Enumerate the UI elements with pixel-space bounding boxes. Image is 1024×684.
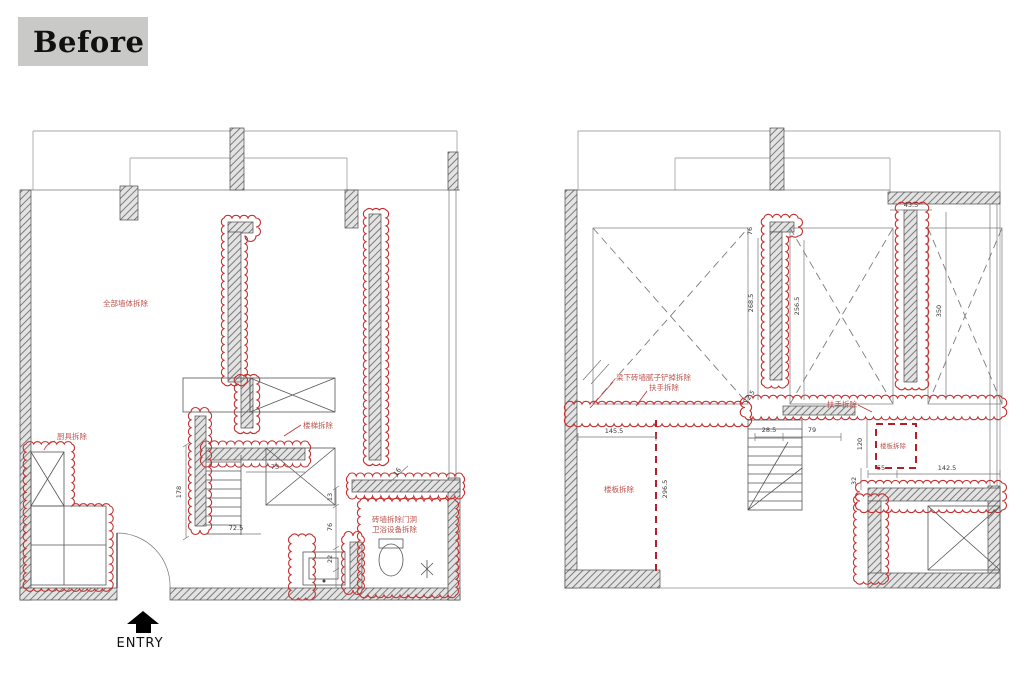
floor-plan-drawing: 178 72.5 73 13 76 22 16 全部墙体拆除 厨具拆除 楼梯拆除… xyxy=(0,0,1024,684)
dim-79: 79 xyxy=(808,426,816,434)
dim-73: 73 xyxy=(271,463,279,471)
right-plan-demolition-clouds xyxy=(564,202,1006,584)
dim-350: 350 xyxy=(935,305,943,317)
dim-256-5: 256.5 xyxy=(793,297,801,316)
dim-32: 32 xyxy=(850,477,858,485)
dim-178: 178 xyxy=(175,486,183,498)
dim-72-5: 72.5 xyxy=(742,389,757,405)
left-plan-entry-door xyxy=(117,533,170,588)
dim-120: 120 xyxy=(856,438,864,450)
note-handrail-demolition-2: 扶手拆除 xyxy=(827,399,857,409)
dim-268-5: 268.5 xyxy=(747,294,755,313)
dim-142-5: 142.5 xyxy=(938,464,957,472)
right-plan-walls xyxy=(565,128,1000,588)
dim-72-5: 72.5 xyxy=(229,524,243,532)
dim-76: 76 xyxy=(326,523,334,531)
before-badge: Before xyxy=(18,17,148,66)
toilet xyxy=(379,544,403,576)
dim-28-5: 28.5 xyxy=(762,426,776,434)
left-plan: 178 72.5 73 13 76 22 16 全部墙体拆除 厨具拆除 楼梯拆除… xyxy=(20,128,465,600)
note-bath-demolition-2: 卫浴设备拆除 xyxy=(372,524,417,534)
before-demolition-plan-page: Before xyxy=(0,0,1024,684)
dim-296-5: 296.5 xyxy=(661,480,669,499)
entry-label: ENTRY xyxy=(108,636,172,651)
note-beam-wall-demolition: 梁下砖墙腻子铲掉拆除 xyxy=(616,372,691,382)
note-kitchen-demolition: 厨具拆除 xyxy=(57,431,87,441)
dim-22: 22 xyxy=(326,555,334,563)
dim-43-5: 43.5 xyxy=(904,201,918,209)
dim-13: 13 xyxy=(326,493,334,501)
right-plan: 43.5 76 268.5 256.5 350 72.5 28.5 79 145… xyxy=(564,128,1006,588)
left-plan-bathroom xyxy=(303,539,433,585)
floor-drain-icon xyxy=(421,560,433,578)
dim-55: 55 xyxy=(877,464,885,472)
left-plan-cabinet xyxy=(31,452,106,585)
note-handrail-demolition-1: 扶手拆除 xyxy=(649,382,679,392)
note-stair-demolition: 楼梯拆除 xyxy=(303,420,333,430)
dim-16: 16 xyxy=(392,466,403,477)
note-bath-demolition-1: 砖墙拆除门洞 xyxy=(372,514,417,524)
note-wall-demolition: 全部墙体拆除 xyxy=(103,298,148,308)
note-slab-demolition-2: 楼板拆除 xyxy=(880,441,907,450)
note-slab-demolition-1: 楼板拆除 xyxy=(604,484,634,494)
entry-arrow-icon xyxy=(127,611,159,633)
dim-76: 76 xyxy=(746,227,754,235)
before-badge-label: Before xyxy=(18,25,145,59)
dim-145-5: 145.5 xyxy=(605,427,624,435)
